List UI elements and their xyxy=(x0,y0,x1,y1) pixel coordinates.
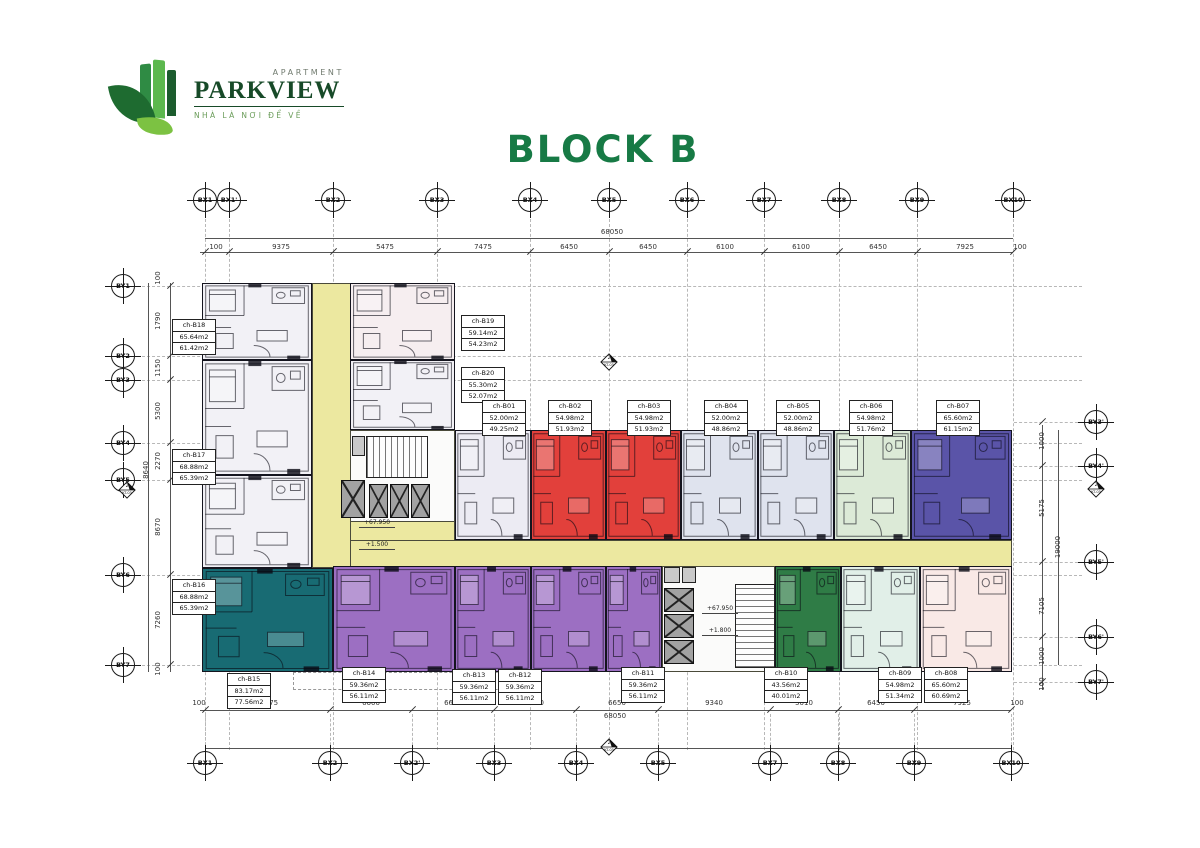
dimension-value: 6100 xyxy=(703,243,747,251)
parkview-logo: APARTMENT PARKVIEW NHÀ LÀ NƠI ĐỂ VỀ xyxy=(112,58,362,146)
furniture-motif-icon xyxy=(351,284,454,359)
logo-tagline: NHÀ LÀ NƠI ĐỂ VỀ xyxy=(194,111,354,120)
unit-label: ch-B05 52.00m2 48.86m2 xyxy=(776,401,820,436)
unit-area-net: 56.11m2 xyxy=(498,692,542,705)
apartment-unit xyxy=(455,566,531,672)
grid-line-horizontal xyxy=(1014,637,1083,638)
unit-area-net: 61.15m2 xyxy=(936,423,980,436)
dimension-value: 100 xyxy=(154,256,162,300)
grid-bubble: BX8 xyxy=(827,188,851,212)
apartment-unit xyxy=(911,430,1012,540)
apartment-unit xyxy=(834,430,911,540)
balcony-dashed-outline xyxy=(293,672,533,690)
furniture-motif-icon xyxy=(842,567,919,671)
grid-bubble: BY3 xyxy=(111,368,135,392)
unit-label: ch-B13 59.36m2 56.11m2 xyxy=(452,670,496,705)
apartment-unit xyxy=(920,566,1012,672)
grid-bubble: BX7 xyxy=(752,188,776,212)
unit-label: ch-B17 68.88m2 65.39m2 xyxy=(172,450,216,485)
dimension-value: 5475 xyxy=(363,243,407,251)
dimension-bottom-overall: 68050 xyxy=(593,712,637,720)
section-marker-icon: 2 KT-03 xyxy=(600,738,618,756)
dimension-value: 6100 xyxy=(779,243,823,251)
unit-label: ch-B04 52.00m2 48.86m2 xyxy=(704,401,748,436)
section-marker-icon: 2 KT-03 xyxy=(118,481,136,499)
furniture-motif-icon xyxy=(456,567,530,671)
block-title: BLOCK B xyxy=(507,128,700,171)
unit-area-net: 51.93m2 xyxy=(548,423,592,436)
dimension-value: 1000 xyxy=(1038,419,1046,463)
unit-label: ch-B18 65.64m2 61.42m2 xyxy=(172,320,216,355)
section-marker-icon: 2 KT-03 xyxy=(600,353,618,371)
grid-bubble: BY3' xyxy=(1084,410,1108,434)
furniture-motif-icon xyxy=(203,476,311,567)
grid-bubble: BY4' xyxy=(1084,454,1108,478)
unit-area-net: 65.39m2 xyxy=(172,472,216,485)
apartment-unit xyxy=(455,430,531,540)
furniture-motif-icon xyxy=(607,431,680,539)
dimension-value: 100 xyxy=(1038,662,1046,706)
grid-line-horizontal xyxy=(1014,562,1083,563)
grid-line-horizontal xyxy=(1014,682,1083,683)
dimension-value: 5300 xyxy=(154,389,162,433)
apartment-unit xyxy=(202,283,312,360)
unit-area-net: 40.01m2 xyxy=(764,690,808,703)
apartment-unit xyxy=(606,566,662,672)
grid-bubble: BY6 xyxy=(111,563,135,587)
unit-label: ch-B06 54.98m2 51.76m2 xyxy=(849,401,893,436)
unit-label: ch-B03 54.98m2 51.93m2 xyxy=(627,401,671,436)
apartment-unit xyxy=(531,430,606,540)
dimension-value: 7260 xyxy=(154,598,162,642)
dimension-value: 8670 xyxy=(154,505,162,549)
staircase-icon xyxy=(735,584,775,668)
level-mark: +1.800 xyxy=(702,627,738,636)
furniture-motif-icon xyxy=(912,431,1011,539)
apartment-unit xyxy=(350,360,455,430)
leaf-buildings-icon xyxy=(112,60,184,140)
dimension-value: 7475 xyxy=(461,243,505,251)
unit-label: ch-B19 59.14m2 54.23m2 xyxy=(461,316,505,351)
apartment-unit xyxy=(841,566,920,672)
unit-label: ch-B15 83.17m2 77.56m2 xyxy=(227,674,271,709)
unit-label: ch-B20 55.30m2 52.07m2 xyxy=(461,368,505,403)
apartment-unit xyxy=(758,430,834,540)
unit-area-net: 61.42m2 xyxy=(172,342,216,355)
grid-bubble: BY1 xyxy=(111,274,135,298)
grid-bubble: BX4 xyxy=(564,751,588,775)
furniture-motif-icon xyxy=(203,361,311,474)
zone-region xyxy=(350,540,1012,568)
unit-label: ch-B16 68.88m2 65.39m2 xyxy=(172,580,216,615)
grid-line-vertical xyxy=(1013,214,1014,750)
apartment-unit xyxy=(202,360,312,475)
unit-label: ch-B12 59.36m2 56.11m2 xyxy=(498,670,542,705)
unit-label: ch-B10 43.56m2 40.01m2 xyxy=(764,668,808,703)
grid-bubble: BX1' xyxy=(217,188,241,212)
dimension-value: 100 xyxy=(154,647,162,691)
unit-area-net: 48.86m2 xyxy=(704,423,748,436)
grid-line-horizontal xyxy=(1014,422,1083,423)
dimension-value: 6450 xyxy=(547,243,591,251)
dimension-left-outer: 8640 xyxy=(142,448,150,492)
apartment-unit xyxy=(775,566,841,672)
grid-bubble: BX4 xyxy=(518,188,542,212)
dimension-value: 5175 xyxy=(1038,486,1046,530)
level-mark: +1.500 xyxy=(359,541,395,550)
grid-bubble: BY6' xyxy=(1084,625,1108,649)
staircase-icon xyxy=(366,436,428,478)
elevator-icon xyxy=(341,480,365,518)
unit-label: ch-B02 54.98m2 51.93m2 xyxy=(548,401,592,436)
grid-line-horizontal xyxy=(1014,466,1083,467)
unit-area-net: 48.86m2 xyxy=(776,423,820,436)
grid-bubble: BX5 xyxy=(646,751,670,775)
unit-area-net: 56.11m2 xyxy=(621,690,665,703)
furniture-motif-icon xyxy=(532,431,605,539)
grid-bubble: BX1 xyxy=(193,751,217,775)
dimension-value: 1790 xyxy=(154,299,162,343)
unit-area-net: 60.69m2 xyxy=(924,690,968,703)
grid-bubble: BX5 xyxy=(597,188,621,212)
dimension-value: 100 xyxy=(177,699,221,707)
unit-area-net: 51.93m2 xyxy=(627,423,671,436)
unit-area-net: 51.76m2 xyxy=(849,423,893,436)
apartment-unit xyxy=(606,430,681,540)
section-marker-icon: 2 KT-03 xyxy=(1087,480,1105,498)
dimension-right-overall: 19000 xyxy=(1054,525,1062,569)
furniture-motif-icon xyxy=(759,431,833,539)
dimension-value: 9375 xyxy=(259,243,303,251)
dimension-value: 7925 xyxy=(943,243,987,251)
shaft-icon xyxy=(352,436,365,456)
dimension-line-top-overall xyxy=(205,238,1013,239)
unit-area-net: 56.11m2 xyxy=(452,692,496,705)
unit-label: ch-B08 65.60m2 60.69m2 xyxy=(924,668,968,703)
shaft-icon xyxy=(664,567,680,583)
furniture-motif-icon xyxy=(682,431,757,539)
furniture-motif-icon xyxy=(203,569,332,671)
dimension-value: 7105 xyxy=(1038,584,1046,628)
unit-area-net: 49.25m2 xyxy=(482,423,526,436)
grid-bubble: BX3 xyxy=(425,188,449,212)
level-mark: +67.950 xyxy=(702,605,738,614)
elevator-icon xyxy=(390,484,409,518)
dimension-value: 1150 xyxy=(154,346,162,390)
unit-label: ch-B01 52.00m2 49.25m2 xyxy=(482,401,526,436)
unit-area-net: 56.11m2 xyxy=(342,690,386,703)
furniture-motif-icon xyxy=(607,567,661,671)
zone-region xyxy=(312,283,352,568)
grid-bubble: BX9 xyxy=(905,188,929,212)
grid-bubble: BX9 xyxy=(902,751,926,775)
dimension-top-overall: 68050 xyxy=(590,228,634,236)
dimension-value: 9340 xyxy=(692,699,736,707)
furniture-motif-icon xyxy=(203,284,311,359)
dimension-value: 6450 xyxy=(626,243,670,251)
logo-apartment-text: APARTMENT xyxy=(194,68,344,77)
apartment-unit xyxy=(333,566,455,672)
unit-label: ch-B07 65.60m2 61.15m2 xyxy=(936,401,980,436)
unit-area-net: 77.56m2 xyxy=(227,696,271,709)
dimension-line-bottom xyxy=(200,710,1011,711)
elevator-icon xyxy=(664,614,694,638)
apartment-unit xyxy=(202,475,312,568)
unit-label: ch-B14 59.36m2 56.11m2 xyxy=(342,668,386,703)
unit-area-net: 54.23m2 xyxy=(461,338,505,351)
furniture-motif-icon xyxy=(835,431,910,539)
furniture-motif-icon xyxy=(776,567,840,671)
dimension-value: 6450 xyxy=(856,243,900,251)
elevator-icon xyxy=(369,484,388,518)
grid-bubble: BY7' xyxy=(1084,670,1108,694)
elevator-icon xyxy=(664,588,694,612)
logo-name: PARKVIEW xyxy=(194,77,344,107)
level-mark: +67.950 xyxy=(359,519,395,528)
grid-bubble: BX2 xyxy=(318,751,342,775)
dimension-value: 100 xyxy=(998,243,1042,251)
furniture-motif-icon xyxy=(351,361,454,429)
apartment-unit xyxy=(681,430,758,540)
unit-label: ch-B11 59.36m2 56.11m2 xyxy=(621,668,665,703)
grid-bubble: BX7 xyxy=(758,751,782,775)
furniture-motif-icon xyxy=(921,567,1011,671)
grid-bubble: BX2 xyxy=(321,188,345,212)
unit-area-net: 65.39m2 xyxy=(172,602,216,615)
unit-area-net: 51.34m2 xyxy=(878,690,922,703)
grid-bubble: BX2' xyxy=(400,751,424,775)
dimension-value: 100 xyxy=(995,699,1039,707)
grid-bubble: BX3 xyxy=(482,751,506,775)
grid-bubble: BX6 xyxy=(675,188,699,212)
grid-bubble: BY7 xyxy=(111,653,135,677)
grid-bubble: BY5' xyxy=(1084,550,1108,574)
dimension-value: 2270 xyxy=(154,439,162,483)
shaft-icon xyxy=(682,567,696,583)
grid-bubble: BX8 xyxy=(826,751,850,775)
apartment-unit xyxy=(531,566,606,672)
dimension-value: 100 xyxy=(194,243,238,251)
elevator-icon xyxy=(411,484,430,518)
apartment-unit xyxy=(202,568,333,672)
unit-label: ch-B09 54.98m2 51.34m2 xyxy=(878,668,922,703)
furniture-motif-icon xyxy=(334,567,454,671)
elevator-icon xyxy=(664,640,694,664)
grid-bubble: BY4 xyxy=(111,431,135,455)
furniture-motif-icon xyxy=(532,567,605,671)
grid-bubble: BX10 xyxy=(1001,188,1025,212)
furniture-motif-icon xyxy=(456,431,530,539)
apartment-unit xyxy=(350,283,455,360)
grid-bubble: BX10 xyxy=(999,751,1023,775)
floor-plan: APARTMENT PARKVIEW NHÀ LÀ NƠI ĐỂ VỀ BLOC… xyxy=(0,0,1200,848)
